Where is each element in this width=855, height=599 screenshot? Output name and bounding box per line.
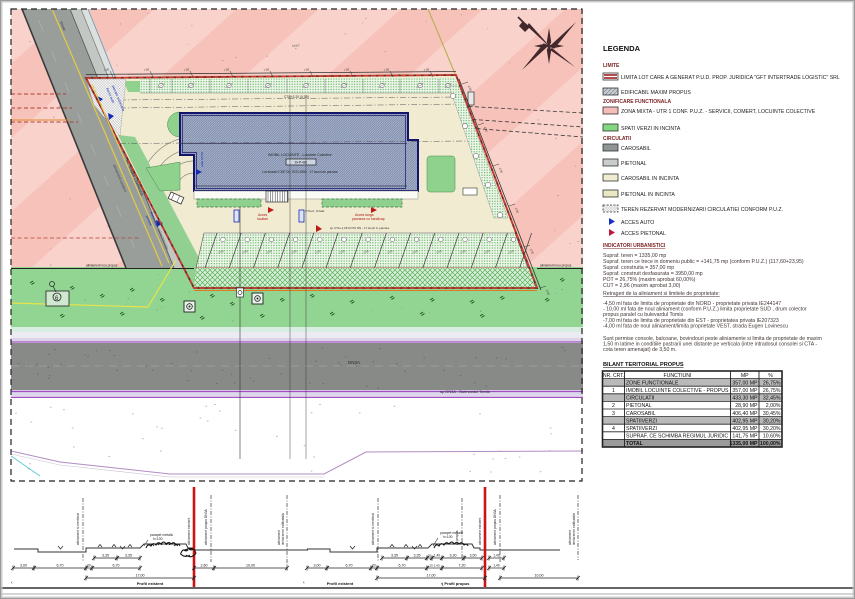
svg-text:1,40: 1,40 — [493, 554, 499, 558]
svg-text:141,75 MP: 141,75 MP — [732, 434, 758, 440]
svg-text:7,20: 7,20 — [459, 564, 466, 568]
svg-text:3,35: 3,35 — [391, 554, 398, 558]
svg-text:100,00%: 100,00% — [760, 441, 781, 447]
svg-text:CIRCULATII: CIRCULATII — [603, 136, 632, 142]
svg-text:cota teren amenajat) de 3,50 m: cota teren amenajat) de 3,50 m. — [603, 347, 677, 353]
svg-text:%: % — [768, 373, 773, 379]
svg-text:2,60: 2,60 — [201, 564, 208, 568]
svg-text:10,00: 10,00 — [246, 564, 255, 568]
svg-text:3,35: 3,35 — [414, 554, 421, 558]
svg-text:20 1,40: 20 1,40 — [429, 564, 439, 568]
svg-text:IMOBIL LOCUINTE COLECTIVE - PR: IMOBIL LOCUINTE COLECTIVE - PROPUS — [626, 388, 729, 394]
svg-text:357,00 MP: 357,00 MP — [732, 388, 758, 394]
svg-text:30,20%: 30,20% — [763, 426, 781, 432]
svg-text:1335,00 MP: 1335,00 MP — [730, 441, 759, 447]
svg-text:EDIFICABIL MAXIM PROPUS: EDIFICABIL MAXIM PROPUS — [621, 90, 691, 96]
svg-text:6,70: 6,70 — [346, 564, 353, 568]
svg-text:60: 60 — [372, 564, 376, 568]
svg-text:locatari: locatari — [257, 217, 268, 221]
svg-text:aliniament nou propus: aliniament nou propus — [540, 264, 572, 268]
svg-text:402,95 MP: 402,95 MP — [732, 418, 758, 424]
svg-text:6,70: 6,70 — [399, 564, 406, 568]
svg-text:Retrageri de la aliniament si: Retrageri de la aliniament si limitele d… — [603, 291, 720, 297]
svg-text:SPATIIVERZI: SPATIIVERZI — [626, 426, 657, 432]
svg-text:1,40: 1,40 — [434, 554, 440, 558]
svg-text:3,00: 3,00 — [20, 564, 27, 568]
svg-text:sp DN3A - Bulevardul Tomis: sp DN3A - Bulevardul Tomis — [440, 389, 490, 394]
svg-text:CTA+3,20 (0,00): CTA+3,20 (0,00) — [284, 95, 309, 99]
svg-text:Acces auto: Acces auto — [200, 152, 205, 167]
svg-text:3,35: 3,35 — [102, 554, 109, 558]
svg-text:aliniament propus DN3A: aliniament propus DN3A — [493, 508, 497, 545]
svg-text:32,45%: 32,45% — [763, 396, 781, 402]
svg-text:3,50: 3,50 — [470, 554, 477, 558]
svg-text:10,60%: 10,60% — [763, 434, 781, 440]
svg-text:Profil existent: Profil existent — [327, 581, 354, 586]
svg-text:6,70: 6,70 — [113, 564, 120, 568]
svg-text:TEREN REZERVAT MODERNIZARII CI: TEREN REZERVAT MODERNIZARII CIRCULATIEI … — [621, 207, 783, 213]
svg-text:3,00: 3,00 — [314, 564, 321, 568]
svg-text:LIMITA LOT CARE A GENERAT P.U.: LIMITA LOT CARE A GENERAT P.U.D. PROP. J… — [621, 75, 840, 81]
svg-text:CAROSABIL IN INCINTA: CAROSABIL IN INCINTA — [621, 176, 679, 182]
svg-text:2: 2 — [612, 403, 615, 409]
svg-text:LEGENDA: LEGENDA — [603, 44, 641, 53]
svg-text:10,00: 10,00 — [535, 574, 544, 578]
svg-text:aliniament si mentinut: aliniament si mentinut — [76, 513, 80, 545]
svg-text:BILANT TERITORIAL PROPUS: BILANT TERITORIAL PROPUS — [603, 362, 684, 368]
svg-text:PIETONAL: PIETONAL — [626, 403, 652, 409]
svg-text:60: 60 — [87, 564, 91, 568]
svg-text:PIETONAL IN INCINTA: PIETONAL IN INCINTA — [621, 192, 675, 198]
svg-text:6,70: 6,70 — [57, 564, 64, 568]
svg-text:SUPRAF. CE SCHIMBA REGIMUL JUR: SUPRAF. CE SCHIMBA REGIMUL JURIDIC — [626, 434, 728, 440]
svg-text:SPATI VERZI IN INCINTA: SPATI VERZI IN INCINTA — [621, 126, 681, 132]
svg-text:ZONA MIXTA - UTR 1 CONF. P.U.Z: ZONA MIXTA - UTR 1 CONF. P.U.Z. - SERVIC… — [621, 109, 816, 115]
svg-text:aliniament existent: aliniament existent — [187, 518, 191, 545]
svg-text:4: 4 — [612, 426, 615, 432]
svg-text:402,95 MP: 402,95 MP — [732, 426, 758, 432]
svg-text:357,00 MP: 357,00 MP — [732, 380, 758, 386]
svg-text:aliniament propus DN3A: aliniament propus DN3A — [204, 508, 208, 545]
svg-text:LIMITE: LIMITE — [603, 63, 620, 69]
svg-text:26,75%: 26,75% — [763, 388, 781, 394]
svg-text:PIETONAL: PIETONAL — [621, 161, 647, 167]
svg-text:limita teren edificabila: limita teren edificabila — [281, 513, 285, 545]
svg-text:NR. CRT.: NR. CRT. — [603, 373, 624, 379]
svg-text:1,40: 1,40 — [493, 564, 499, 568]
svg-text:FUNCTIUNI: FUNCTIUNI — [664, 373, 692, 379]
svg-text:30,20%: 30,20% — [763, 418, 781, 424]
svg-text:30,45%: 30,45% — [763, 411, 781, 417]
svg-text:CAROSABIL: CAROSABIL — [626, 411, 656, 417]
svg-text:aliniament si mentinut: aliniament si mentinut — [371, 513, 375, 545]
svg-text:SPATIIVERZI: SPATIIVERZI — [626, 418, 657, 424]
svg-text:-4,00 ml fata de noul aliniame: -4,00 ml fata de noul aliniament/limita … — [603, 323, 788, 329]
svg-text:MP: MP — [741, 373, 749, 379]
svg-text:h=100: h=100 — [443, 535, 453, 539]
svg-text:CTA+0, S=lala: CTA+0, S=lala — [305, 209, 325, 213]
svg-text:ACCES PIETONAL: ACCES PIETONAL — [621, 231, 666, 237]
svg-text:3: 3 — [612, 411, 615, 417]
svg-text:3,35: 3,35 — [125, 554, 132, 558]
svg-text:Profil existent: Profil existent — [137, 581, 164, 586]
svg-text:1: 1 — [612, 388, 615, 394]
svg-text:limita teren edificabila: limita teren edificabila — [572, 513, 576, 545]
svg-text:aliniament nou propus: aliniament nou propus — [86, 264, 118, 268]
svg-text:INDICATORI URBANISTICI: INDICATORI URBANISTICI — [603, 243, 666, 249]
svg-text:TOTAL: TOTAL — [626, 441, 644, 447]
svg-text:ZONE FUNCTIONALE: ZONE FUNCTIONALE — [626, 380, 679, 386]
svg-text:aliniament existent: aliniament existent — [478, 518, 482, 545]
svg-text:3,30: 3,30 — [450, 554, 457, 558]
svg-text:Lot strada S 357,00, SCD 3950: Lot strada S 357,00, SCD 3950 - 17 locur… — [262, 170, 338, 174]
svg-text:›( Profil propus: ›( Profil propus — [441, 581, 470, 586]
svg-text:17,00: 17,00 — [427, 574, 436, 578]
svg-text:ZONIFICARE FUNCTIONALA: ZONIFICARE FUNCTIONALA — [603, 99, 671, 105]
svg-text:ACCES AUTO: ACCES AUTO — [621, 220, 654, 226]
svg-text:406,40 MP: 406,40 MP — [732, 411, 758, 417]
svg-text:ax propus: ax propus — [455, 530, 459, 545]
svg-text:parcarea cu handicap: parcarea cu handicap — [352, 217, 385, 221]
svg-text:20: 20 — [428, 554, 432, 558]
svg-text:17,00: 17,00 — [136, 574, 145, 578]
svg-text:CIRCULATII: CIRCULATII — [626, 396, 654, 402]
svg-text:CUT = 2,96 (maxim aprobat 3,00: CUT = 2,96 (maxim aprobat 3,00) — [603, 283, 681, 289]
svg-text:2,00%: 2,00% — [766, 403, 781, 409]
svg-text:28,90 MP: 28,90 MP — [735, 403, 758, 409]
svg-text:h=100: h=100 — [153, 537, 163, 541]
svg-text:26,75%: 26,75% — [763, 380, 781, 386]
svg-text:IMOBIL LOCUINTE - Locuinte Col: IMOBIL LOCUINTE - Locuinte Colective — [268, 153, 332, 157]
svg-text:sp CTA+1,28 KOTA NN - 17 locur: sp CTA+1,28 KOTA NN - 17 locuri in parca… — [330, 226, 390, 230]
svg-text:CAROSABIL: CAROSABIL — [621, 146, 651, 152]
svg-text:DN3A: DN3A — [348, 360, 360, 365]
svg-text:433,30 MP: 433,30 MP — [732, 396, 758, 402]
